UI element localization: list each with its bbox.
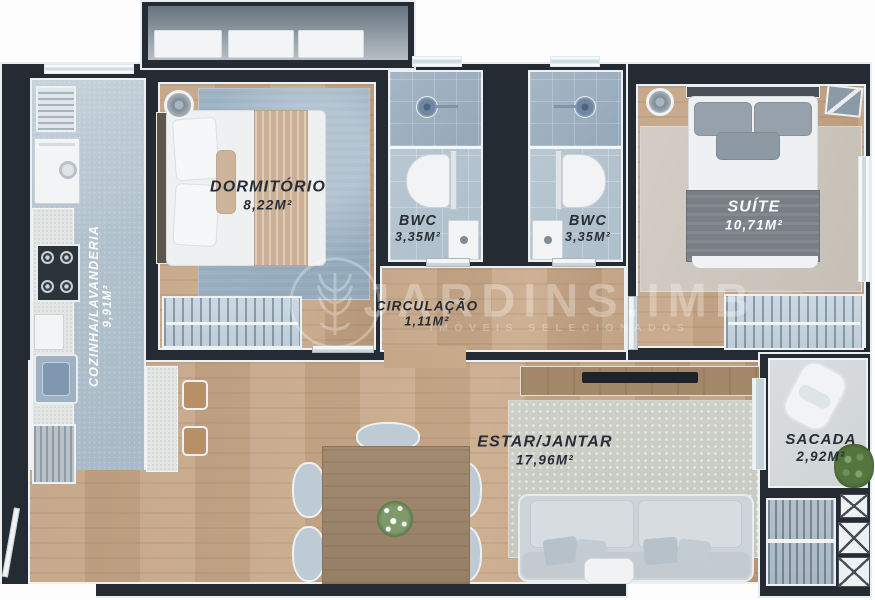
bathroom-window [412, 56, 462, 67]
washer-panel [39, 143, 75, 146]
bed-pillow [172, 117, 220, 182]
bed-pillow [694, 102, 752, 136]
toilet [406, 154, 450, 208]
dining-chair [292, 526, 326, 582]
elevator-icon [838, 522, 870, 554]
room-area: 8,22M² [210, 197, 326, 213]
dining-chair [292, 462, 326, 518]
shower-arm [436, 105, 458, 108]
room-label-circulacao: CIRCULAÇÃO 1,11M² [376, 299, 479, 330]
room-area: 3,35M² [395, 230, 441, 245]
room-label-cozinha: COZINHA/LAVANDERIA 9,91M² [87, 225, 115, 387]
wardrobe-rail [166, 322, 298, 325]
room-area: 10,71M² [725, 217, 783, 233]
lounge-cushion [796, 383, 833, 411]
sink-basin [42, 362, 70, 396]
louver-cabinet [36, 86, 76, 132]
table-centerpiece-flowers [374, 498, 416, 540]
throw-pillow [677, 538, 712, 566]
burner-icon [41, 251, 54, 264]
shower-arm [554, 105, 576, 108]
room-label-sacada: SACADA 2,92M² [785, 431, 856, 465]
shower-glass [390, 146, 481, 149]
room-name: DORMITÓRIO [210, 179, 326, 198]
room-label-bwc2: BWC 3,35M² [565, 213, 611, 245]
bar-stool [182, 380, 208, 410]
kitchen-sink [34, 354, 78, 404]
room-label-suite: SUÍTE 10,71M² [725, 199, 783, 234]
refrigerator [32, 424, 76, 484]
accent-pillow [716, 132, 780, 160]
room-name: COZINHA/LAVANDERIA [87, 225, 102, 387]
kitchen-window [44, 64, 134, 74]
room-label-dormitorio: DORMITÓRIO 8,22M² [210, 179, 326, 214]
room-name: BWC [565, 213, 611, 230]
room-name: BWC [395, 213, 441, 230]
room-label-bwc1: BWC 3,35M² [395, 213, 441, 245]
tv [582, 372, 698, 383]
ceiling-fan-icon [164, 90, 194, 120]
ceiling-fan-icon [646, 88, 674, 116]
room-area: 1,11M² [376, 315, 479, 330]
suite-window [858, 156, 870, 282]
bed-pillow [754, 102, 812, 136]
burner-icon [60, 280, 73, 293]
room-name: CIRCULAÇÃO [376, 299, 479, 315]
toilet-tank [555, 150, 562, 210]
throw-pillow [643, 537, 679, 566]
bathroom-window [550, 56, 600, 67]
stairs-landing [768, 539, 834, 543]
room-name: SACADA [785, 431, 856, 449]
terrace-planter [228, 30, 294, 58]
room-area: 2,92M² [785, 449, 856, 465]
bar-stool [182, 426, 208, 456]
room-label-estar-jantar: ESTAR/JANTAR 17,96M² [477, 434, 613, 469]
throw-pillow [542, 536, 579, 566]
room-area: 9,91M² [102, 225, 116, 387]
room-name: ESTAR/JANTAR [477, 434, 613, 453]
bathroom1-door [426, 258, 470, 267]
shaft-icon [840, 494, 868, 518]
bed-foot-sheet [692, 256, 818, 268]
washer-door-icon [59, 161, 77, 179]
bathroom-vanity [532, 220, 563, 260]
decor-tray [825, 84, 864, 118]
bedroom-wardrobe [162, 296, 302, 348]
balcony-glass-door [752, 378, 766, 470]
burner-icon [41, 280, 54, 293]
kitchen-cabinet [34, 314, 64, 350]
bathroom-vanity [448, 220, 479, 260]
toilet-tank [450, 150, 457, 210]
shower-glass [530, 146, 621, 149]
faucet-icon [460, 236, 468, 244]
shower-head-icon [574, 96, 596, 118]
margin-patch [0, 584, 96, 600]
shower-head-icon [416, 96, 438, 118]
elevator-icon [838, 557, 870, 587]
faucet-icon [544, 236, 552, 244]
terrace-planter [298, 30, 364, 58]
room-name: SUÍTE [725, 199, 783, 218]
kitchen-peninsula [146, 366, 178, 472]
room-area: 17,96M² [477, 452, 613, 468]
washing-machine [34, 138, 80, 204]
terrace-planter [154, 30, 222, 58]
bathroom2-door [552, 258, 596, 267]
ottoman [584, 558, 634, 584]
room-area: 3,35M² [565, 230, 611, 245]
circulation-opening [384, 346, 466, 368]
burner-icon [60, 251, 73, 264]
floor-plan: COZINHA/LAVANDERIA 9,91M² DORMITÓRIO 8,2… [0, 0, 875, 600]
